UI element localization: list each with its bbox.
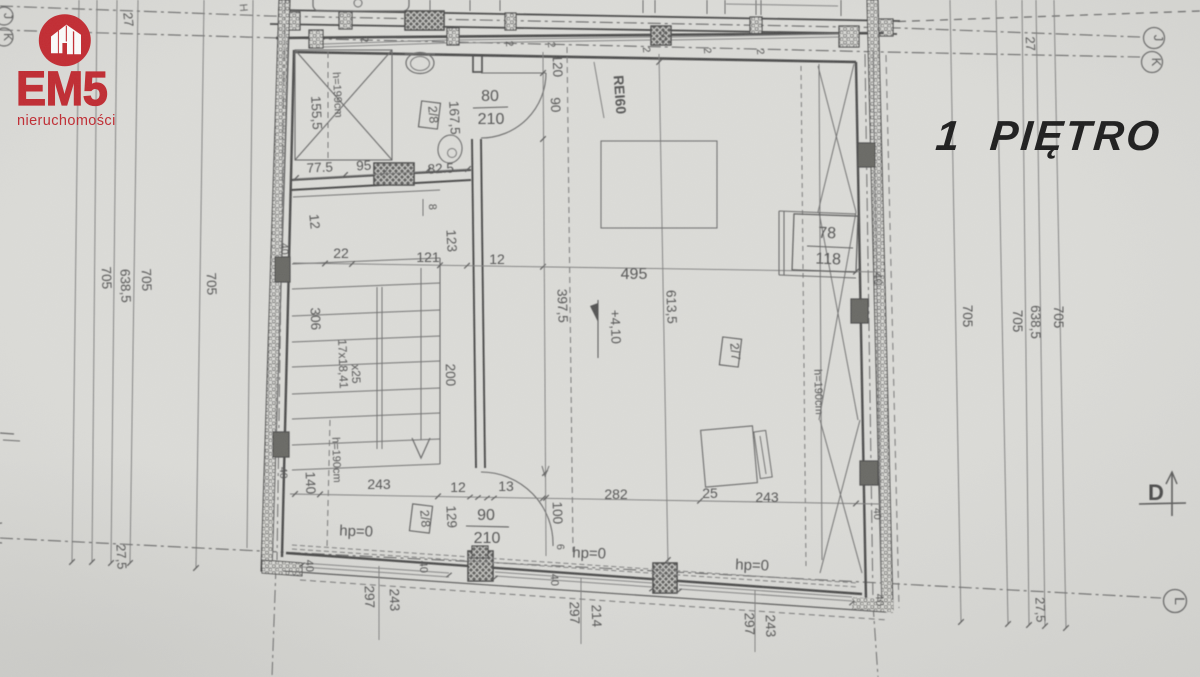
svg-text:78: 78 bbox=[818, 225, 836, 243]
svg-text:214: 214 bbox=[589, 604, 605, 628]
svg-text:397,5: 397,5 bbox=[554, 289, 570, 323]
svg-text:297: 297 bbox=[362, 585, 378, 608]
svg-text:2/8: 2/8 bbox=[417, 509, 433, 528]
svg-text:243: 243 bbox=[387, 588, 403, 611]
svg-text:243: 243 bbox=[755, 489, 779, 505]
svg-text:h=190cm: h=190cm bbox=[329, 437, 343, 483]
svg-text:2: 2 bbox=[754, 48, 767, 55]
svg-text:hp=0: hp=0 bbox=[572, 544, 606, 562]
svg-text:27: 27 bbox=[1023, 36, 1039, 51]
svg-text:210: 210 bbox=[474, 530, 501, 547]
svg-text:13: 13 bbox=[498, 478, 514, 494]
svg-text:25: 25 bbox=[702, 485, 718, 501]
svg-text:121: 121 bbox=[416, 249, 440, 265]
svg-text:282: 282 bbox=[604, 486, 628, 502]
svg-text:297: 297 bbox=[567, 601, 583, 624]
svg-text:40: 40 bbox=[277, 467, 290, 479]
svg-text:705: 705 bbox=[99, 266, 115, 289]
svg-text:40: 40 bbox=[871, 508, 883, 520]
svg-text:2/7: 2/7 bbox=[727, 342, 743, 361]
svg-text:K: K bbox=[1, 33, 15, 41]
svg-text:155,5: 155,5 bbox=[308, 95, 325, 130]
svg-text:2: 2 bbox=[701, 47, 714, 54]
svg-text:H: H bbox=[237, 3, 250, 12]
svg-text:12: 12 bbox=[306, 213, 322, 230]
svg-text:100: 100 bbox=[550, 501, 566, 524]
svg-text:hp=0: hp=0 bbox=[339, 522, 373, 540]
svg-text:118: 118 bbox=[815, 251, 841, 269]
svg-text:90: 90 bbox=[548, 97, 564, 113]
svg-text:x25: x25 bbox=[349, 364, 364, 384]
svg-text:40: 40 bbox=[873, 593, 886, 606]
svg-text:h=190cm: h=190cm bbox=[811, 369, 825, 415]
svg-text:50: 50 bbox=[657, 30, 668, 42]
svg-text:2: 2 bbox=[640, 46, 653, 53]
svg-text:705: 705 bbox=[139, 268, 155, 291]
svg-text:27: 27 bbox=[120, 12, 136, 28]
svg-text:40: 40 bbox=[303, 559, 316, 572]
svg-text:6: 6 bbox=[554, 544, 566, 551]
svg-text:17x18,41: 17x18,41 bbox=[335, 339, 351, 389]
svg-text:129: 129 bbox=[443, 505, 459, 528]
svg-text:80: 80 bbox=[481, 88, 499, 105]
svg-text:705: 705 bbox=[1051, 306, 1066, 329]
svg-text:90: 90 bbox=[477, 507, 495, 524]
svg-text:27,5: 27,5 bbox=[113, 544, 129, 570]
svg-text:613,5: 613,5 bbox=[663, 290, 679, 324]
svg-text:K: K bbox=[1149, 58, 1164, 67]
svg-text:2/8: 2/8 bbox=[425, 105, 441, 124]
svg-text:22: 22 bbox=[333, 245, 349, 261]
svg-text:200: 200 bbox=[443, 364, 458, 387]
svg-text:77.5: 77.5 bbox=[306, 159, 333, 175]
svg-text:140: 140 bbox=[303, 471, 319, 494]
svg-text:495: 495 bbox=[621, 266, 648, 283]
svg-text:J: J bbox=[1, 13, 15, 19]
svg-text:210: 210 bbox=[478, 111, 505, 128]
svg-text:2: 2 bbox=[503, 40, 516, 47]
svg-text:167,5: 167,5 bbox=[446, 100, 463, 135]
svg-text:705: 705 bbox=[960, 305, 975, 328]
svg-text:hp=0: hp=0 bbox=[735, 556, 769, 574]
svg-text:40: 40 bbox=[278, 243, 291, 255]
svg-text:REI60: REI60 bbox=[611, 75, 630, 115]
svg-text:243: 243 bbox=[763, 614, 779, 637]
svg-text:D: D bbox=[1148, 480, 1164, 505]
svg-text:27,5: 27,5 bbox=[1032, 597, 1048, 623]
svg-text:705: 705 bbox=[1010, 310, 1025, 333]
svg-text:8: 8 bbox=[426, 203, 438, 210]
svg-text:297: 297 bbox=[742, 612, 758, 635]
svg-text:705: 705 bbox=[204, 272, 220, 295]
svg-text:40: 40 bbox=[871, 272, 886, 286]
svg-text:2: 2 bbox=[545, 41, 558, 48]
svg-text:123: 123 bbox=[443, 229, 459, 252]
svg-text:L: L bbox=[1172, 597, 1188, 605]
svg-text:638,5: 638,5 bbox=[117, 269, 133, 303]
svg-text:243: 243 bbox=[367, 476, 391, 492]
svg-text:40: 40 bbox=[417, 560, 430, 573]
svg-text:J: J bbox=[1151, 35, 1166, 42]
svg-text:306: 306 bbox=[308, 307, 324, 330]
svg-text:638,5: 638,5 bbox=[1028, 305, 1043, 339]
svg-text:40: 40 bbox=[548, 573, 561, 586]
svg-text:120: 120 bbox=[550, 54, 566, 77]
svg-text:95: 95 bbox=[356, 158, 372, 174]
svg-text:12: 12 bbox=[450, 479, 466, 495]
svg-text:h=199cm: h=199cm bbox=[330, 72, 344, 118]
svg-text:12: 12 bbox=[489, 251, 505, 267]
svg-text:+4,10: +4,10 bbox=[607, 310, 623, 345]
